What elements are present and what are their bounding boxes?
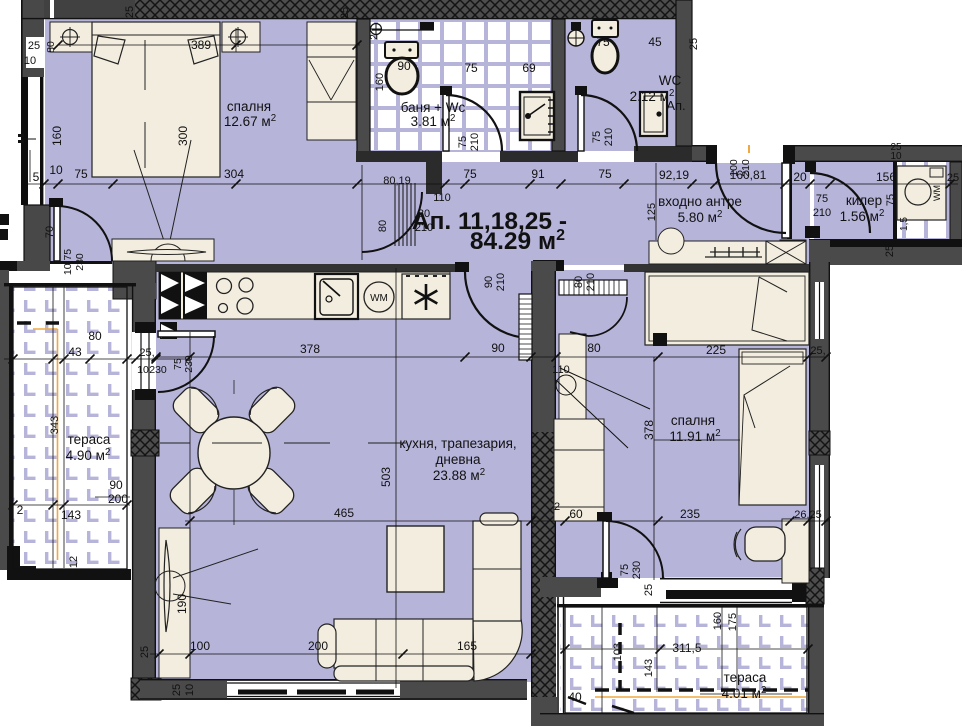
svg-text:дневна: дневна — [436, 452, 481, 467]
svg-text:156: 156 — [876, 170, 896, 184]
svg-text:2: 2 — [554, 501, 560, 513]
svg-text:200: 200 — [308, 639, 328, 653]
svg-text:спалня: спалня — [671, 413, 715, 428]
svg-text:465: 465 — [334, 506, 354, 520]
svg-text:210: 210 — [585, 273, 597, 291]
svg-text:311,5: 311,5 — [672, 641, 701, 655]
svg-text:160: 160 — [50, 126, 64, 146]
svg-text:110: 110 — [433, 192, 451, 204]
svg-text:26,25: 26,25 — [794, 509, 822, 521]
svg-text:304: 304 — [224, 167, 244, 181]
svg-text:40: 40 — [568, 690, 582, 704]
svg-text:75: 75 — [598, 167, 612, 181]
svg-text:80: 80 — [88, 329, 102, 343]
svg-text:спалня: спалня — [227, 99, 271, 114]
svg-text:160: 160 — [712, 612, 724, 630]
svg-text:43: 43 — [68, 345, 82, 359]
svg-text:45: 45 — [648, 35, 662, 49]
svg-text:90: 90 — [491, 341, 505, 355]
svg-text:3.81 м2: 3.81 м2 — [411, 113, 456, 129]
svg-text:103: 103 — [612, 643, 624, 661]
svg-text:тераса: тераса — [724, 670, 767, 685]
svg-text:230: 230 — [149, 364, 167, 376]
svg-text:WM: WM — [932, 185, 942, 201]
svg-text:25: 25 — [947, 172, 959, 184]
svg-text:210: 210 — [495, 273, 507, 291]
svg-text:4.90 м2: 4.90 м2 — [66, 447, 111, 463]
svg-text:80: 80 — [45, 41, 57, 53]
svg-text:75: 75 — [885, 194, 897, 206]
svg-text:69: 69 — [522, 61, 536, 75]
svg-text:80: 80 — [587, 341, 601, 355]
svg-text:10: 10 — [24, 55, 36, 67]
svg-text:входно антре: входно антре — [658, 194, 742, 209]
svg-text:230: 230 — [183, 355, 195, 373]
svg-text:200: 200 — [108, 492, 128, 506]
svg-text:10: 10 — [49, 163, 63, 177]
svg-text:5.80 м2: 5.80 м2 — [678, 209, 723, 225]
svg-text:343: 343 — [49, 416, 61, 434]
svg-text:210: 210 — [415, 222, 433, 234]
svg-text:10: 10 — [137, 364, 149, 376]
svg-text:25: 25 — [688, 38, 700, 50]
svg-text:75: 75 — [591, 131, 603, 143]
svg-text:20: 20 — [793, 170, 807, 184]
svg-text:160: 160 — [374, 73, 386, 91]
svg-text:4.01 м2: 4.01 м2 — [722, 685, 767, 701]
svg-text:25: 25 — [884, 245, 896, 257]
svg-text:70: 70 — [44, 226, 56, 238]
svg-text:100: 100 — [728, 159, 740, 177]
svg-text:баня + Wc: баня + Wc — [401, 100, 466, 115]
svg-text:75: 75 — [619, 564, 631, 576]
svg-text:190: 190 — [175, 594, 189, 614]
svg-text:235: 235 — [680, 507, 700, 521]
svg-text:1,5: 1,5 — [899, 217, 910, 231]
svg-text:84.29 м2: 84.29 м2 — [470, 227, 565, 255]
svg-text:WC: WC — [659, 73, 682, 88]
svg-text:2: 2 — [17, 503, 24, 517]
svg-text:12: 12 — [68, 556, 80, 568]
svg-text:230: 230 — [631, 561, 643, 579]
svg-text:90: 90 — [397, 59, 411, 73]
svg-text:2: 2 — [369, 34, 380, 40]
svg-text:5: 5 — [33, 170, 40, 184]
svg-text:92,19: 92,19 — [659, 168, 689, 182]
svg-text:кухня, трапезария,: кухня, трапезария, — [399, 436, 516, 451]
svg-text:91: 91 — [531, 167, 545, 181]
svg-text:Ап.: Ап. — [666, 98, 685, 113]
svg-text:1.56 м2: 1.56 м2 — [840, 208, 885, 224]
svg-text:25: 25 — [339, 7, 351, 19]
svg-text:100: 100 — [190, 639, 210, 653]
svg-text:25,: 25, — [139, 347, 154, 359]
svg-text:210: 210 — [469, 133, 481, 151]
svg-text:80: 80 — [377, 220, 389, 232]
svg-text:12.67 м2: 12.67 м2 — [224, 113, 276, 129]
svg-text:90: 90 — [483, 276, 495, 288]
svg-text:90: 90 — [109, 478, 123, 492]
svg-text:210: 210 — [603, 128, 615, 146]
svg-text:23.88 м2: 23.88 м2 — [433, 467, 485, 483]
svg-text:10: 10 — [184, 684, 196, 696]
svg-text:10 75: 10 75 — [62, 249, 74, 275]
svg-text:25: 25 — [643, 584, 655, 596]
svg-text:килер: килер — [846, 193, 882, 208]
svg-text:378: 378 — [300, 342, 320, 356]
svg-text:25: 25 — [171, 684, 183, 696]
svg-text:80: 80 — [418, 208, 430, 220]
svg-text:143: 143 — [61, 508, 81, 522]
svg-text:WM: WM — [370, 293, 388, 304]
svg-text:225: 225 — [706, 343, 726, 357]
svg-text:143: 143 — [643, 659, 655, 677]
svg-text:503: 503 — [379, 467, 393, 487]
svg-text:75: 75 — [457, 136, 469, 148]
svg-text:75: 75 — [596, 35, 610, 49]
svg-text:175: 175 — [727, 613, 739, 631]
svg-text:210: 210 — [813, 207, 831, 219]
svg-text:80: 80 — [573, 276, 585, 288]
svg-text:165: 165 — [457, 639, 477, 653]
svg-text:210: 210 — [740, 159, 752, 177]
svg-text:75: 75 — [464, 61, 478, 75]
svg-text:11.91 м2: 11.91 м2 — [669, 428, 720, 444]
svg-text:80,19: 80,19 — [383, 175, 411, 187]
svg-text:25,: 25, — [810, 345, 825, 357]
svg-text:25: 25 — [28, 40, 40, 52]
svg-text:75: 75 — [816, 193, 828, 205]
svg-text:110: 110 — [552, 364, 570, 376]
svg-text:60: 60 — [569, 507, 583, 521]
svg-text:75: 75 — [74, 167, 88, 181]
svg-text:25: 25 — [139, 646, 151, 658]
svg-text:389: 389 — [191, 38, 211, 52]
svg-text:378: 378 — [642, 420, 656, 440]
svg-text:300: 300 — [176, 126, 190, 146]
svg-text:25: 25 — [124, 6, 136, 18]
svg-text:10: 10 — [890, 151, 902, 162]
svg-text:75: 75 — [463, 167, 477, 181]
svg-text:230: 230 — [74, 253, 86, 271]
svg-text:тераса: тераса — [68, 432, 111, 447]
